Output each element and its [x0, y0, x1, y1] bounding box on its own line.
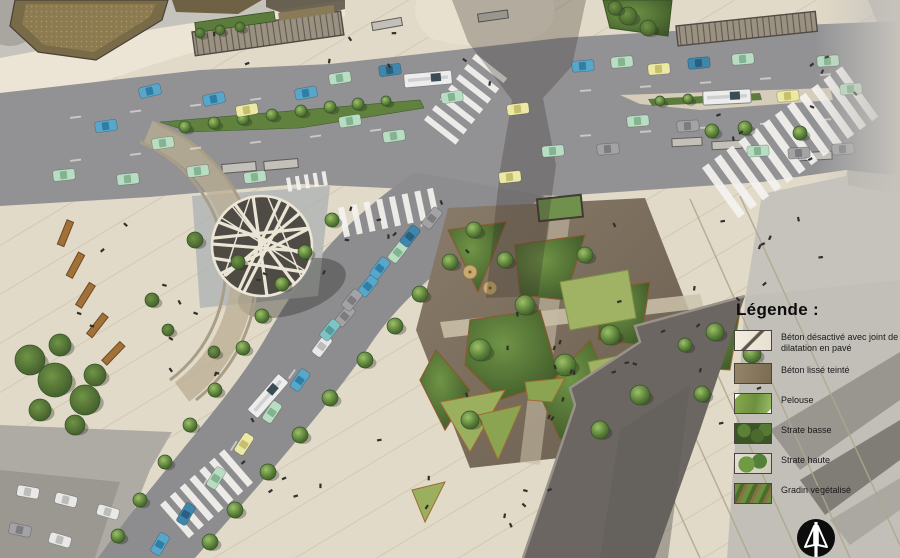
- swatch-strate-haute: [734, 453, 772, 474]
- swatch-beton-desactive: [734, 330, 772, 351]
- car: [677, 120, 700, 133]
- car: [747, 145, 770, 158]
- car: [116, 172, 139, 185]
- swatch-gradin-vegetalise: [734, 483, 772, 504]
- legend-item-label: Béton désactivé avec joint de dilatation…: [781, 330, 900, 354]
- legend-item: Béton désactivé avec joint de dilatation…: [734, 330, 900, 354]
- pedestrian: [213, 32, 215, 37]
- car: [788, 147, 811, 160]
- pedestrian: [506, 346, 508, 351]
- car: [777, 90, 800, 103]
- legend-item: Béton lissé teinté: [734, 363, 900, 384]
- car: [597, 143, 620, 156]
- legend-item-label: Béton lissé teinté: [781, 363, 850, 376]
- car: [611, 56, 634, 69]
- car: [186, 164, 209, 178]
- car: [648, 63, 671, 76]
- pedestrian: [387, 234, 389, 239]
- legend-panel: Légende : Béton désactivé avec joint de …: [734, 300, 900, 513]
- legend-item-label: Pelouse: [781, 393, 814, 406]
- legend-item: Strate haute: [734, 453, 900, 474]
- sphere-sculpture: [212, 195, 312, 296]
- car: [506, 102, 529, 116]
- car: [572, 60, 595, 73]
- legend-item-label: Gradin végétalisé: [781, 483, 851, 496]
- legend-item-label: Strate haute: [781, 453, 830, 466]
- pedestrian: [428, 476, 430, 481]
- pedestrian: [319, 484, 321, 489]
- car: [52, 168, 75, 181]
- legend-item: Pelouse: [734, 393, 900, 414]
- car: [498, 170, 521, 183]
- car: [243, 170, 266, 184]
- car: [732, 53, 755, 66]
- legend-title: Légende :: [736, 300, 900, 320]
- car: [688, 57, 711, 70]
- swatch-strate-basse: [734, 423, 772, 444]
- legend-item-label: Strate basse: [781, 423, 832, 436]
- swatch-beton-lisse: [734, 363, 772, 384]
- aerial-render: Légende : Béton désactivé avec joint de …: [0, 0, 900, 558]
- legend-item: Strate basse: [734, 423, 900, 444]
- swatch-pelouse: [734, 393, 772, 414]
- legend-item: Gradin végétalisé: [734, 483, 900, 504]
- pedestrian: [392, 32, 397, 34]
- car: [627, 115, 650, 128]
- pedestrian: [573, 370, 575, 375]
- car: [542, 145, 565, 158]
- bus: [703, 89, 752, 105]
- photo-fade-edge: [815, 0, 900, 200]
- north-arrow-icon: [796, 518, 836, 558]
